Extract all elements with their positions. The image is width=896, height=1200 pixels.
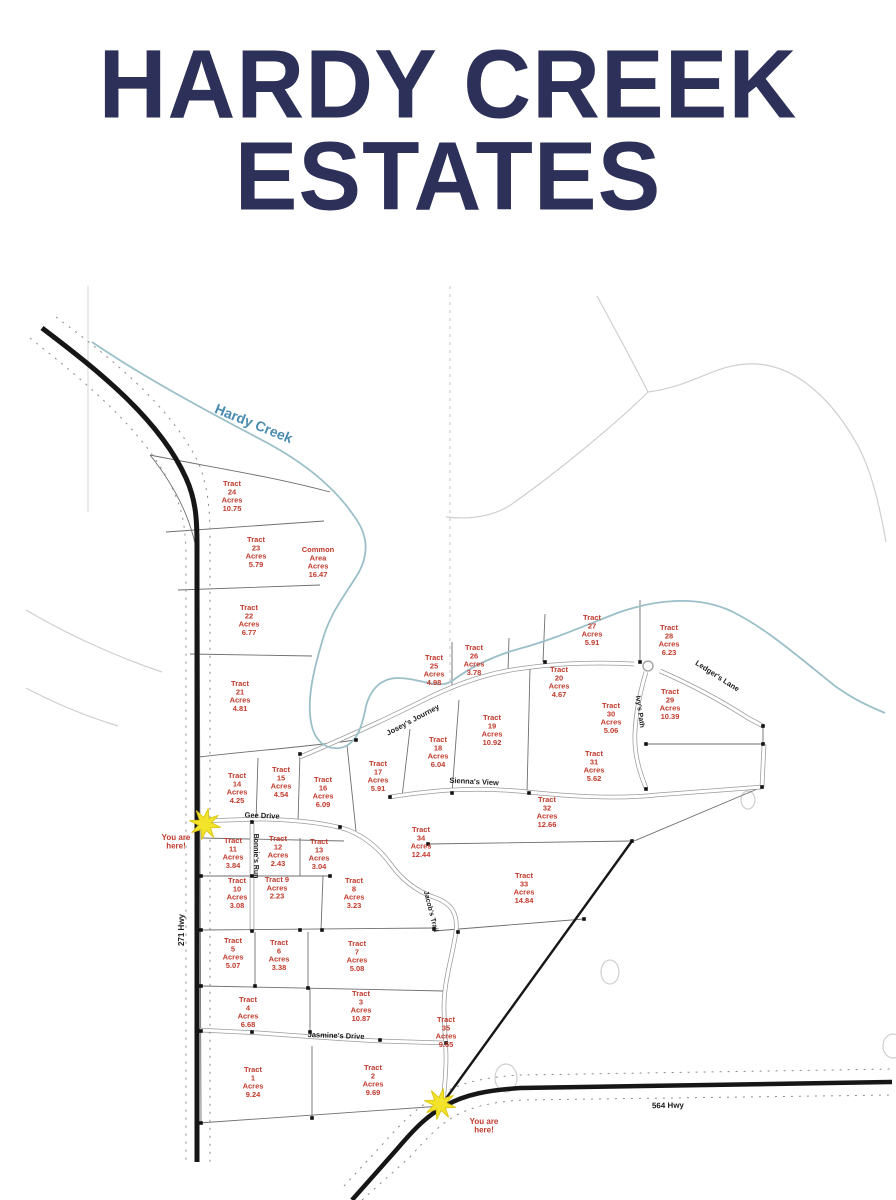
tract-label: Tract24Acres10.75 <box>222 479 243 513</box>
street-label: 271 Hwy <box>177 913 186 946</box>
plat-poster: HARDY CREEK ESTATES <box>0 0 896 1200</box>
boundary-node <box>250 1030 254 1034</box>
tract-label: Tract34Acres12.44 <box>411 825 432 859</box>
boundary-node <box>298 752 302 756</box>
tract-label: Tract35Acres9.65 <box>436 1015 457 1049</box>
tract-label: Tract21Acres4.81 <box>230 679 251 713</box>
tract-label: CommonAreaAcres16.47 <box>302 545 335 579</box>
roundabout <box>643 661 653 671</box>
tract-label: Tract3Acres10.87 <box>351 989 372 1023</box>
tract-label: Tract12Acres2.43 <box>268 834 289 868</box>
street-label: Bonnie's Run <box>252 834 259 879</box>
tract-label: Tract20Acres4.67 <box>549 665 570 699</box>
tract-label: Tract29Acres10.39 <box>660 687 681 721</box>
tract-label: Tract13Acres3.04 <box>309 837 330 871</box>
boundary-node <box>199 1121 203 1125</box>
map-labels: Tract24Acres10.75Tract23Acres5.79CommonA… <box>162 400 741 1134</box>
boundary-node <box>527 791 531 795</box>
boundary-node <box>543 660 547 664</box>
contour-line <box>26 688 118 726</box>
boundary-node <box>378 1038 382 1042</box>
boundary-node <box>456 930 460 934</box>
tract-label: Tract30Acres5.06 <box>601 701 622 735</box>
stream-line <box>446 392 648 518</box>
plat-map: Tract24Acres10.75Tract23Acres5.79CommonA… <box>0 0 896 1200</box>
terrain-lines <box>26 286 896 1092</box>
boundary-node <box>638 660 642 664</box>
tract-label: Tract25Acres4.98 <box>424 653 445 687</box>
boundary-node <box>328 874 332 878</box>
boundary-node <box>338 825 342 829</box>
pond <box>601 960 619 984</box>
tract-label: Tract10Acres3.08 <box>227 876 248 910</box>
pond <box>741 791 755 809</box>
tract-label: Tract6Acres3.38 <box>269 938 290 972</box>
tract-label: Tract22Acres6.77 <box>239 603 260 637</box>
tract-label: Tract23Acres5.79 <box>246 535 267 569</box>
tract-label: Tract17Acres5.91 <box>368 759 389 793</box>
boundary-node <box>760 785 764 789</box>
street-label: Sienna's View <box>449 776 499 788</box>
tract-label: Tract33Acres14.84 <box>514 871 535 905</box>
tract-label: Tract26Acres3.78 <box>464 643 485 677</box>
tract-label: Tract15Acres4.54 <box>271 765 292 799</box>
tract-label: Tract4Acres6.68 <box>238 995 259 1029</box>
tract-label: Tract14Acres4.25 <box>227 771 248 805</box>
stream-line <box>597 296 648 392</box>
you-are-here-label: You arehere! <box>470 1117 499 1134</box>
tract-label: Tract31Acres5.62 <box>584 749 605 783</box>
highway-271-row-line <box>30 338 186 1162</box>
creek-label: Hardy Creek <box>213 400 296 446</box>
boundary-node <box>253 984 257 988</box>
boundary-node <box>388 795 392 799</box>
tract-label: Tract8Acres3.23 <box>344 876 365 910</box>
tract-label: Tract32Acres12.66 <box>537 795 558 829</box>
tract-label: Tract1Acres9.24 <box>243 1065 264 1099</box>
tract-label: Tract7Acres5.08 <box>347 939 368 973</box>
boundary-node <box>306 986 310 990</box>
boundary-node <box>761 724 765 728</box>
boundary-node <box>310 1116 314 1120</box>
boundary-node <box>320 928 324 932</box>
pond <box>883 1034 896 1058</box>
boundary-node <box>298 928 302 932</box>
you-are-here-star <box>186 805 224 843</box>
diagonal-road <box>442 841 632 1104</box>
boundary-node <box>644 787 648 791</box>
boundary-node <box>354 738 358 742</box>
hardy-creek-line <box>92 342 885 748</box>
tract-label: Tract11Acres3.84 <box>223 836 244 870</box>
boundary-node <box>199 1029 203 1033</box>
tract-label: Tract2Acres9.69 <box>363 1063 384 1097</box>
stream-line <box>648 364 886 542</box>
tract-label: Tract5Acres5.07 <box>223 936 244 970</box>
highway-271 <box>30 317 210 1162</box>
contour-line <box>26 610 162 672</box>
boundary-node <box>644 742 648 746</box>
tract-label: Tract18Acres6.04 <box>428 735 449 769</box>
street-label: Gee Drive <box>244 810 279 820</box>
highway-564 <box>344 1069 892 1200</box>
boundary-node <box>250 820 254 824</box>
tract-label: Tract27Acres5.91 <box>582 613 603 647</box>
street-label: 564 Hwy <box>652 1101 685 1111</box>
boundary-node <box>761 742 765 746</box>
highway-564-centerline <box>352 1082 892 1200</box>
boundary-node <box>250 929 254 933</box>
boundary-node <box>582 917 586 921</box>
boundary-node <box>199 874 203 878</box>
boundary-node <box>199 928 203 932</box>
boundary-node <box>199 984 203 988</box>
tract-label: Tract28Acres6.23 <box>659 623 680 657</box>
highway-271-centerline <box>42 328 197 1162</box>
highway-271-row-line <box>56 317 210 1162</box>
you-are-here-label: You arehere! <box>162 833 191 850</box>
boundary-node <box>630 839 634 843</box>
boundary-node <box>450 791 454 795</box>
tract-label: Tract 9Acres2.23 <box>265 875 289 901</box>
tract-label: Tract19Acres10.92 <box>482 713 503 747</box>
tract-label: Tract16Acres6.09 <box>313 775 334 809</box>
